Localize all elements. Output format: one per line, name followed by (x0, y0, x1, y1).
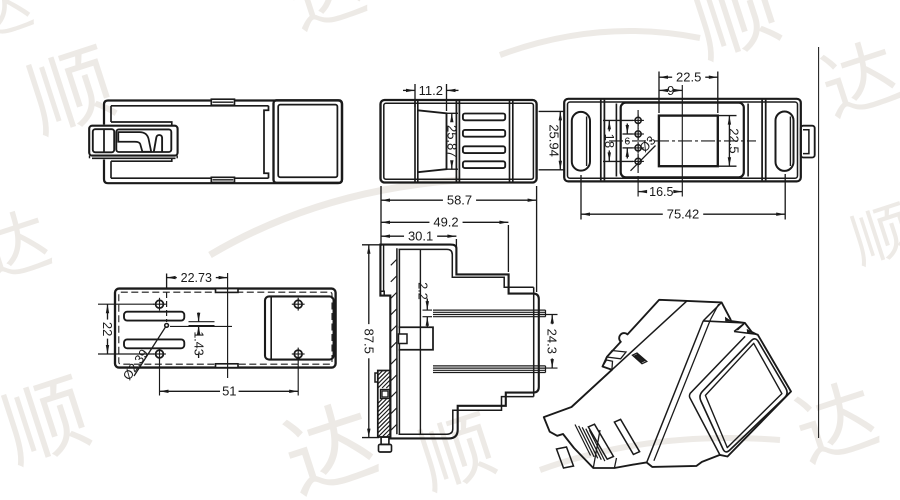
svg-text:2.2: 2.2 (416, 282, 430, 299)
svg-text:30.1: 30.1 (408, 229, 433, 244)
svg-text:9: 9 (667, 83, 674, 98)
svg-text:24.3: 24.3 (545, 329, 560, 354)
svg-text:6: 6 (624, 135, 630, 147)
svg-text:16.5: 16.5 (649, 185, 673, 199)
svg-text:25.94: 25.94 (546, 124, 561, 157)
svg-text:22.5: 22.5 (727, 128, 742, 153)
svg-text:58.7: 58.7 (447, 193, 472, 208)
svg-text:25.87: 25.87 (444, 125, 459, 158)
svg-text:75.42: 75.42 (667, 207, 700, 222)
svg-text:22.73: 22.73 (181, 271, 212, 285)
svg-text:51: 51 (222, 384, 236, 399)
svg-text:11.2: 11.2 (419, 83, 443, 98)
svg-text:87.5: 87.5 (361, 329, 376, 354)
svg-text:1.43: 1.43 (192, 331, 206, 355)
svg-text:22.5: 22.5 (676, 70, 701, 85)
svg-text:22: 22 (100, 322, 115, 336)
svg-text:49.2: 49.2 (433, 215, 458, 230)
svg-text:18: 18 (602, 134, 617, 148)
